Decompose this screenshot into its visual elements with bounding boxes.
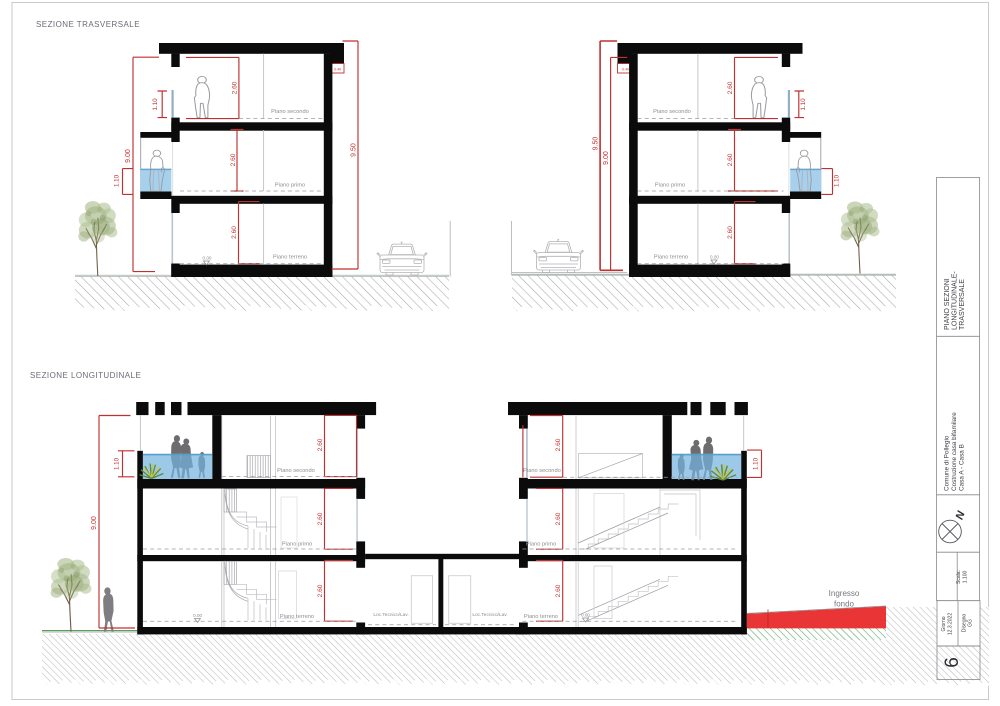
svg-text:Piano primo: Piano primo	[275, 183, 305, 189]
svg-text:2.60: 2.60	[555, 512, 562, 525]
svg-text:9.00: 9.00	[125, 149, 132, 163]
svg-text:Loc.Tecnico/Lav.: Loc.Tecnico/Lav.	[373, 612, 408, 618]
svg-text:Piano terreno: Piano terreno	[654, 255, 688, 261]
svg-text:0.00: 0.00	[710, 255, 719, 260]
svg-text:GG: GG	[968, 619, 974, 627]
svg-text:Piano terreno: Piano terreno	[280, 614, 314, 620]
svg-text:fondo: fondo	[834, 600, 855, 609]
svg-text:6: 6	[942, 657, 963, 668]
svg-text:12.3.2022: 12.3.2022	[948, 613, 954, 635]
svg-text:9.50: 9.50	[592, 137, 599, 151]
svg-text:0.00: 0.00	[203, 256, 212, 261]
svg-text:1.10: 1.10	[152, 98, 159, 111]
svg-text:Scala:: Scala:	[956, 570, 962, 584]
svg-text:Piano terreno: Piano terreno	[524, 614, 558, 620]
svg-text:2.60: 2.60	[555, 584, 562, 597]
svg-text:Piano secondo: Piano secondo	[277, 468, 315, 474]
svg-text:2.60: 2.60	[317, 512, 324, 525]
svg-text:0.00: 0.00	[193, 613, 202, 618]
svg-text:Piano primo: Piano primo	[282, 542, 312, 548]
svg-text:PIANO SEZIONI: PIANO SEZIONI	[944, 278, 951, 330]
svg-text:9.00: 9.00	[91, 516, 98, 530]
svg-text:0.00: 0.00	[581, 613, 590, 618]
svg-text:Piano primo: Piano primo	[526, 542, 556, 548]
svg-text:2.60: 2.60	[727, 226, 734, 239]
svg-text:Piano terreno: Piano terreno	[273, 255, 307, 261]
svg-text:1.10: 1.10	[753, 457, 760, 470]
svg-text:1.10: 1.10	[800, 98, 807, 111]
svg-text:9.50: 9.50	[350, 143, 357, 157]
svg-text:Piano primo: Piano primo	[655, 183, 685, 189]
svg-text:2.60: 2.60	[317, 584, 324, 597]
svg-text:LONGITUDINALE-: LONGITUDINALE-	[951, 271, 958, 330]
svg-text:1.10: 1.10	[113, 174, 120, 187]
svg-text:2.60: 2.60	[317, 438, 324, 451]
svg-text:0.40: 0.40	[334, 68, 341, 72]
svg-text:Piano secondo: Piano secondo	[271, 109, 309, 115]
svg-text:Casa A - Casa B: Casa A - Casa B	[959, 444, 966, 491]
svg-text:1.10: 1.10	[834, 174, 841, 187]
svg-text:1.100: 1.100	[963, 571, 969, 584]
svg-text:Ingresso: Ingresso	[829, 589, 860, 598]
svg-text:Loc.Tecnico/Lav.: Loc.Tecnico/Lav.	[472, 612, 507, 618]
svg-text:2.60: 2.60	[230, 153, 237, 166]
svg-text:2.60: 2.60	[231, 81, 238, 94]
svg-text:Costruzione casa bifamilare: Costruzione casa bifamilare	[951, 412, 958, 491]
svg-text:SEZIONE TRASVERSALE: SEZIONE TRASVERSALE	[36, 20, 140, 29]
svg-text:1.10: 1.10	[114, 457, 121, 470]
svg-text:TRASVERSALE: TRASVERSALE	[959, 279, 966, 330]
svg-text:Piano secondo: Piano secondo	[523, 468, 561, 474]
svg-text:2.60: 2.60	[555, 438, 562, 451]
svg-text:2.60: 2.60	[727, 153, 734, 166]
svg-text:0.40: 0.40	[622, 68, 629, 72]
svg-text:Comune di Pollegio: Comune di Pollegio	[944, 435, 951, 491]
svg-text:2.60: 2.60	[231, 226, 238, 239]
svg-text:9.00: 9.00	[603, 151, 610, 165]
svg-text:2.60: 2.60	[727, 81, 734, 94]
svg-text:Piano secondo: Piano secondo	[653, 109, 691, 115]
svg-text:SEZIONE LONGITUDINALE: SEZIONE LONGITUDINALE	[30, 371, 141, 380]
svg-text:Giorno: Giorno	[941, 616, 947, 631]
